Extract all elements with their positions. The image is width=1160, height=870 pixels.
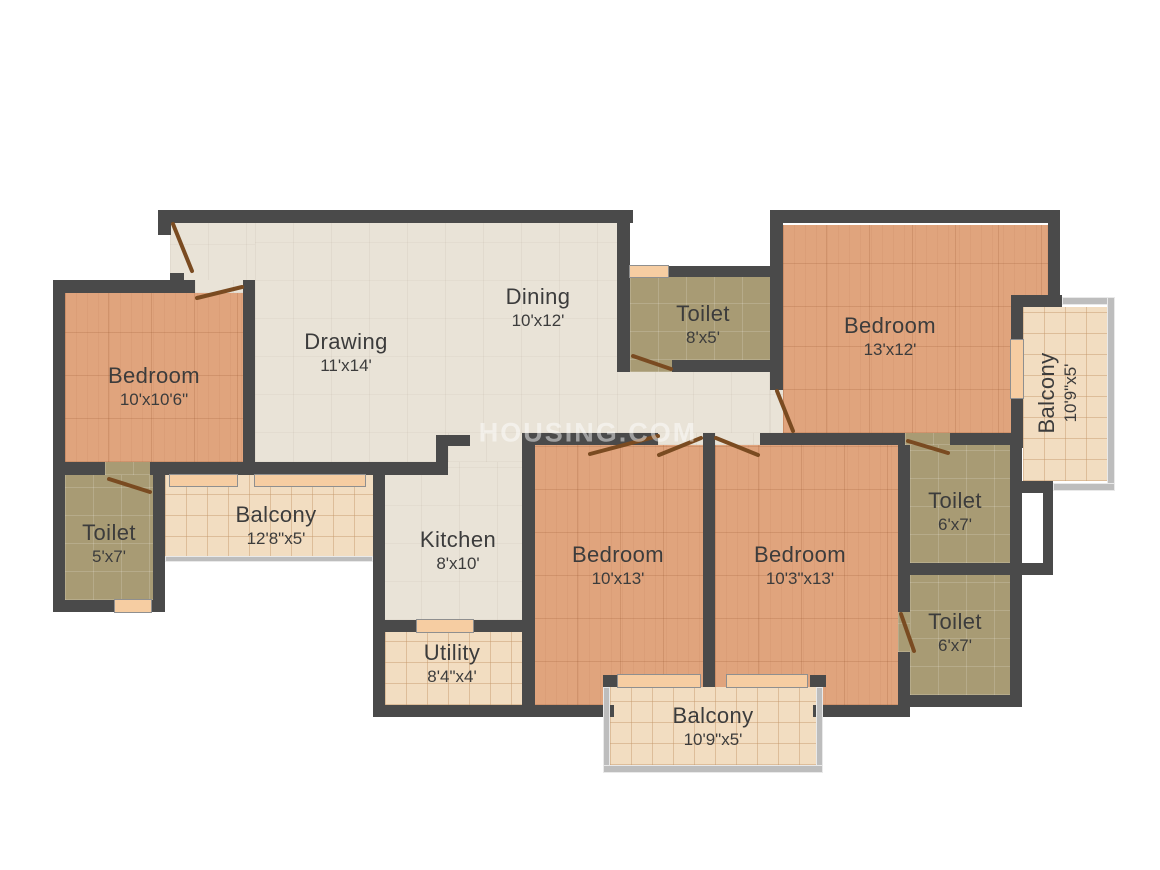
room-label-bedroom-top-right: Bedroom 13'x12' bbox=[844, 314, 936, 360]
room-label-bedroom-left: Bedroom 10'x10'6" bbox=[108, 364, 200, 410]
room-name: Bedroom bbox=[844, 314, 936, 338]
room-name: Utility bbox=[424, 641, 481, 665]
room-dims: 8'x10' bbox=[420, 554, 496, 574]
room-dims: 10'x13' bbox=[572, 569, 664, 589]
room-dims: 10'9"x5' bbox=[672, 730, 753, 750]
room-dims: 10'x10'6" bbox=[108, 390, 200, 410]
door-swing bbox=[197, 287, 242, 298]
room-dims: 6'x7' bbox=[928, 636, 982, 656]
room-dims: 10'3"x13' bbox=[754, 569, 846, 589]
room-label-balcony-left: Balcony 12'8"x5' bbox=[235, 503, 316, 549]
room-dims: 10'x12' bbox=[506, 311, 571, 331]
room-label-toilet-lower-right: Toilet 6'x7' bbox=[928, 610, 982, 656]
room-label-toilet-left: Toilet 5'x7' bbox=[82, 521, 136, 567]
door-swing bbox=[777, 391, 793, 431]
room-dims: 12'8"x5' bbox=[235, 529, 316, 549]
room-label-toilet-upper-right: Toilet 6'x7' bbox=[928, 489, 982, 535]
room-name: Drawing bbox=[304, 330, 388, 354]
room-dims: 11'x14' bbox=[304, 356, 388, 376]
room-dims: 6'x7' bbox=[928, 515, 982, 535]
room-name: Toilet bbox=[928, 610, 982, 634]
room-name: Balcony bbox=[1035, 352, 1059, 433]
room-dims: 8'4"x4' bbox=[424, 667, 481, 687]
door-swing bbox=[173, 224, 192, 271]
room-label-utility: Utility 8'4"x4' bbox=[424, 641, 481, 687]
room-dims: 10'9"x5' bbox=[1061, 352, 1081, 433]
room-label-drawing: Drawing 11'x14' bbox=[304, 330, 388, 376]
room-name: Bedroom bbox=[108, 364, 200, 388]
room-name: Kitchen bbox=[420, 528, 496, 552]
room-dims: 5'x7' bbox=[82, 547, 136, 567]
door-swing bbox=[633, 356, 671, 369]
watermark: HOUSING.COM bbox=[479, 418, 698, 449]
room-name: Bedroom bbox=[754, 543, 846, 567]
room-label-kitchen: Kitchen 8'x10' bbox=[420, 528, 496, 574]
room-name: Toilet bbox=[82, 521, 136, 545]
room-name: Dining bbox=[506, 285, 571, 309]
room-name: Toilet bbox=[676, 302, 730, 326]
room-dims: 8'x5' bbox=[676, 328, 730, 348]
room-name: Balcony bbox=[235, 503, 316, 527]
door-swing bbox=[901, 614, 914, 651]
room-name: Balcony bbox=[672, 704, 753, 728]
room-label-balcony-right: Balcony 10'9"x5' bbox=[1035, 352, 1081, 433]
door-swing bbox=[716, 438, 758, 455]
room-label-dining: Dining 10'x12' bbox=[506, 285, 571, 331]
floor-plan: Bedroom 10'x10'6" Toilet 5'x7' Balcony 1… bbox=[0, 0, 1160, 870]
room-label-balcony-bottom: Balcony 10'9"x5' bbox=[672, 704, 753, 750]
room-label-bedroom-center-right: Bedroom 10'3"x13' bbox=[754, 543, 846, 589]
room-dims: 13'x12' bbox=[844, 340, 936, 360]
room-name: Toilet bbox=[928, 489, 982, 513]
door-swing bbox=[908, 441, 948, 453]
door-swing bbox=[109, 479, 150, 492]
room-label-bedroom-center: Bedroom 10'x13' bbox=[572, 543, 664, 589]
room-name: Bedroom bbox=[572, 543, 664, 567]
room-label-toilet-top: Toilet 8'x5' bbox=[676, 302, 730, 348]
